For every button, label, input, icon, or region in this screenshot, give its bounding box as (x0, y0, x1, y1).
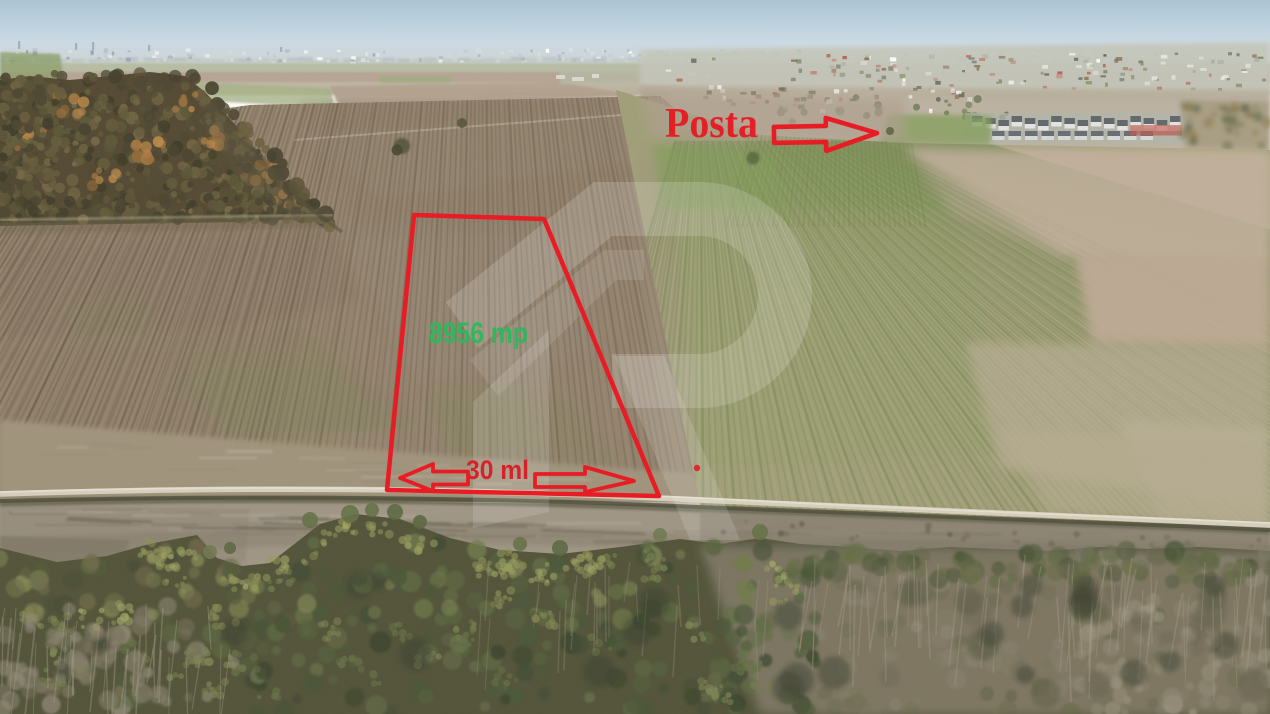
svg-text:Posta: Posta (665, 101, 758, 147)
svg-text:8956 mp: 8956 mp (429, 317, 528, 350)
svg-text:30 ml: 30 ml (466, 455, 529, 485)
